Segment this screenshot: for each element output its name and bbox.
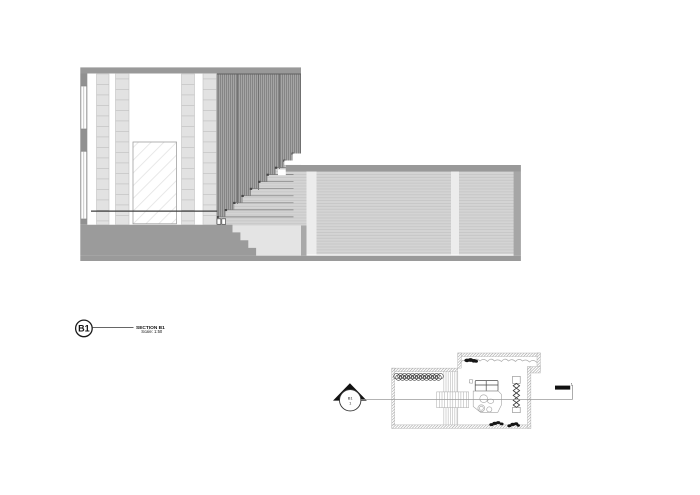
- svg-text:Scale: 1:50: Scale: 1:50: [141, 329, 163, 334]
- svg-text:B1: B1: [78, 324, 90, 334]
